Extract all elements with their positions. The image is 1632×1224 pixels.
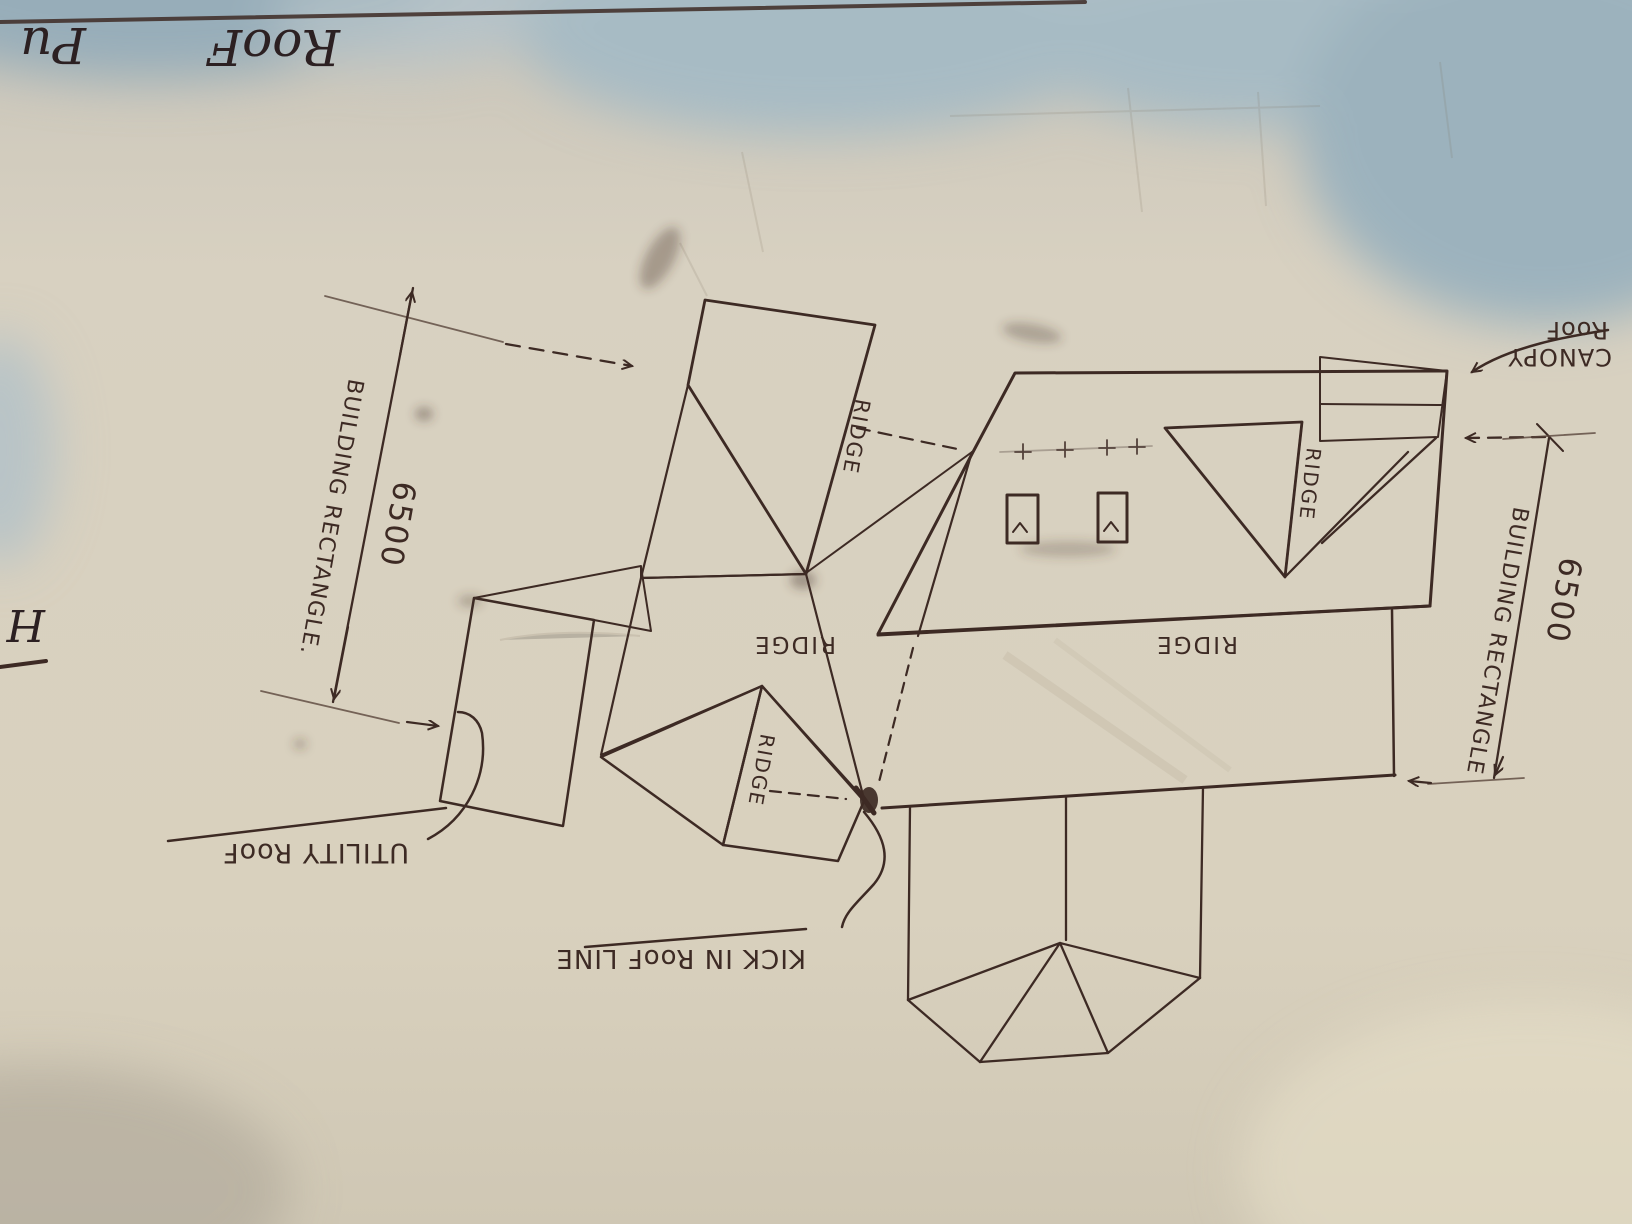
smudge [294, 739, 306, 749]
canopy-label-line2: RooF [1545, 316, 1608, 344]
roof-plan-svg: RooF Pu H BUILDING RECTANGLE. 6500 BUILD… [0, 0, 1632, 1224]
kick-label: KICK IN RooF LINE [555, 943, 806, 973]
photo-of-roof-plan-sketch: RooF Pu H BUILDING RECTANGLE. 6500 BUILD… [0, 0, 1632, 1224]
canopy-label-line1: CANOPY [1507, 343, 1612, 371]
canopy-mid-line [1320, 404, 1441, 405]
sheet-title-word2: Pu [20, 16, 87, 74]
utility-roof-label: UTILITY RooF [222, 837, 409, 868]
sheet-title-word1: RooF [205, 18, 341, 76]
smudge [415, 407, 433, 421]
edge-partial-letter: H [5, 599, 46, 650]
ridge-label-main: RIDGE [1155, 631, 1238, 657]
